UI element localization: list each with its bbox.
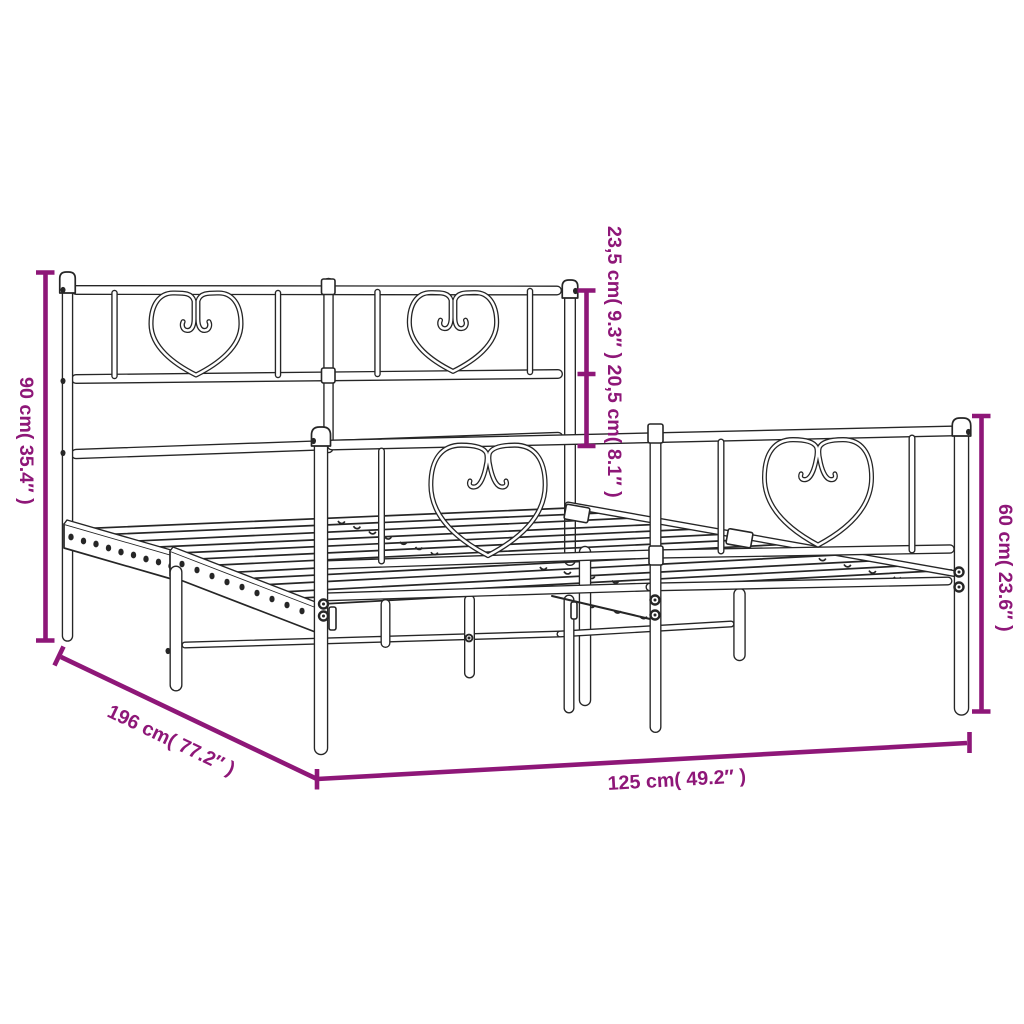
svg-text:23,5 cm( 9.3″ ) 20,5 cm( 8.1″: 23,5 cm( 9.3″ ) 20,5 cm( 8.1″ ): [603, 226, 625, 498]
svg-text:90 cm( 35.4″ ): 90 cm( 35.4″ ): [15, 377, 37, 505]
svg-text:60 cm( 23.6″ ): 60 cm( 23.6″ ): [994, 504, 1016, 632]
